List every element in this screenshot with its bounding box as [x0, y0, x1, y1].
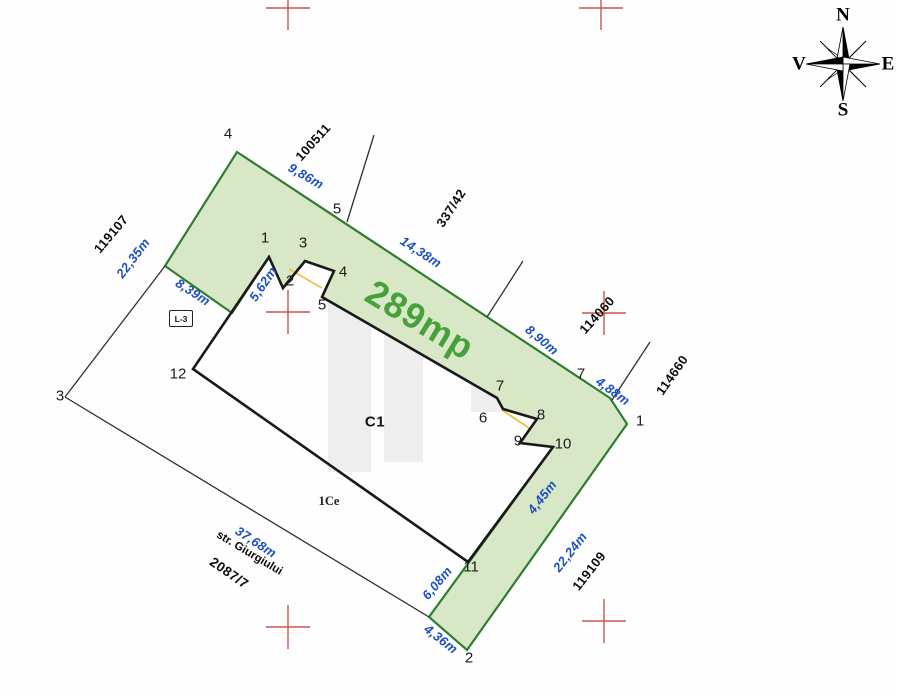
building-point-6-label: 6	[479, 411, 487, 426]
compass-west-label: V	[792, 55, 806, 74]
building-point-7-label: 7	[496, 379, 504, 394]
parcel-point-7-label: 7	[577, 367, 585, 382]
utility-box-l3-label: L-3	[175, 314, 188, 324]
building-point-5-label: 5	[318, 298, 326, 313]
building-point-8-label: 8	[537, 408, 545, 423]
compass-cardinal-points	[806, 27, 880, 101]
compass-east-label: E	[882, 55, 895, 74]
parcel-point-3-label: 3	[56, 389, 64, 404]
parcel-point-1-label: 1	[636, 414, 644, 429]
building-1ce-label: 1Ce	[319, 495, 340, 508]
building-c1-label: C1	[365, 415, 385, 430]
cadastral-plan-page: N S E V 289mp 9,86m 22,35m 8,39m 5,62m 1…	[0, 0, 898, 694]
utility-box-l3: L-3	[169, 310, 193, 327]
building-point-2-label: 2	[286, 274, 294, 289]
parcel-point-4-label: 4	[224, 127, 232, 142]
building-point-9-label: 9	[514, 434, 522, 449]
compass-south-label: S	[838, 101, 849, 120]
building-point-3-label: 3	[299, 236, 307, 251]
building-point-11-label: 11	[463, 560, 479, 575]
parcel-point-2-label: 2	[465, 651, 473, 666]
compass-north-label: N	[836, 6, 850, 25]
building-point-1-label: 1	[261, 231, 269, 246]
parcel-point-5-label: 5	[333, 202, 341, 217]
building-point-10-label: 10	[555, 437, 572, 452]
building-point-4-label: 4	[339, 265, 347, 280]
compass-rose	[806, 27, 880, 101]
building-point-12-label: 12	[170, 367, 187, 382]
